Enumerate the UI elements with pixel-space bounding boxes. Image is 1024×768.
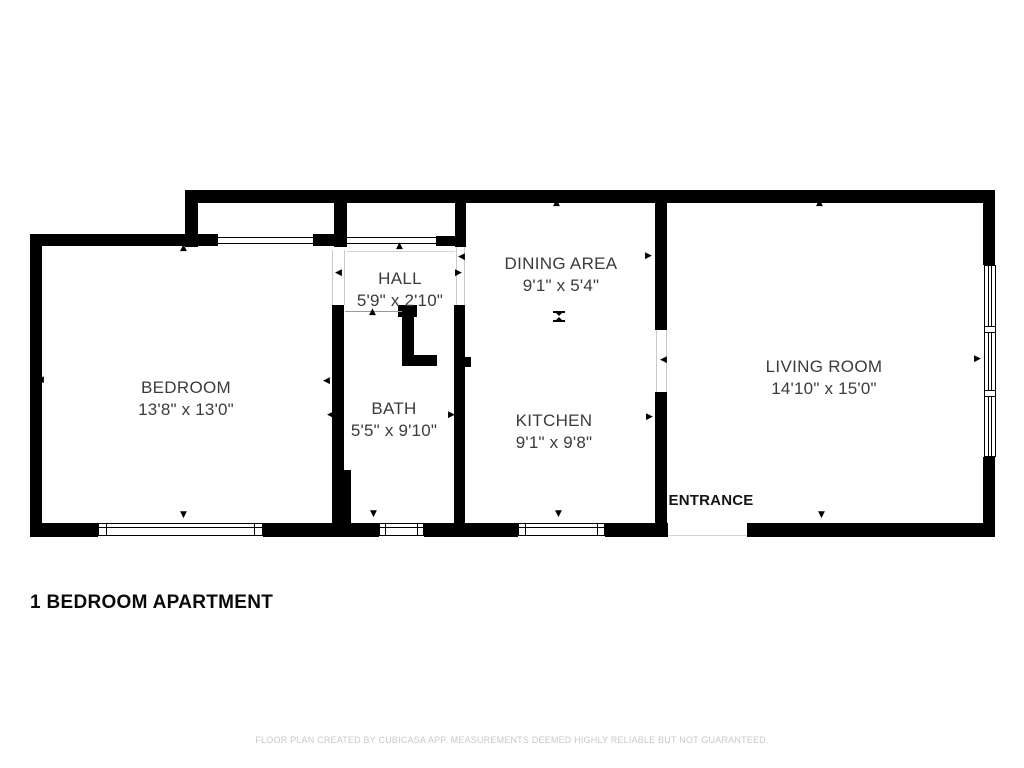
disclaimer-text: FLOOR PLAN CREATED BY CUBICASA APP. MEAS… bbox=[0, 735, 1024, 745]
window-kitchen bbox=[518, 523, 605, 536]
marker-arrow-left-icon: ◀ bbox=[327, 411, 334, 420]
plan-title: 1 BEDROOM APARTMENT bbox=[30, 592, 273, 614]
marker-arrow-right-icon: ▶ bbox=[645, 252, 652, 261]
window-sill-line bbox=[99, 527, 262, 528]
window-mullion bbox=[985, 390, 995, 397]
wall-bottom-3 bbox=[424, 523, 518, 537]
marker-arrow-right-icon: ▶ bbox=[455, 269, 462, 278]
window-bath bbox=[379, 523, 424, 536]
room-name: LIVING ROOM bbox=[714, 356, 934, 378]
wall-bottom-5 bbox=[747, 523, 995, 537]
wall-bedroom-bath-thick bbox=[332, 470, 351, 523]
wall-top bbox=[185, 190, 995, 203]
room-name: DINING AREA bbox=[451, 253, 671, 275]
marker-arrow-left-icon: ◀ bbox=[660, 356, 667, 365]
marker-arrow-up-icon: ▲ bbox=[369, 308, 376, 317]
window-cap-line bbox=[597, 524, 598, 535]
wall-bottom-4 bbox=[605, 523, 668, 537]
room-name: BEDROOM bbox=[76, 377, 296, 399]
window-bedroom bbox=[98, 523, 263, 536]
marker-arrow-right-icon: ▶ bbox=[448, 411, 455, 420]
floor-plan-page: BEDROOM 13'8" x 13'0" HALL 5'9" x 2'10" … bbox=[0, 0, 1024, 768]
marker-arrow-left-icon: ◀ bbox=[37, 376, 44, 385]
window-cap-line bbox=[525, 524, 526, 535]
opening-line-hall-top bbox=[347, 251, 455, 252]
wall-hall-dining-column bbox=[455, 203, 466, 247]
room-label-dining-area: DINING AREA 9'1" x 5'4" bbox=[451, 253, 671, 297]
wall-right-top bbox=[983, 203, 995, 265]
room-label-kitchen: KITCHEN 9'1" x 9'8" bbox=[444, 410, 664, 454]
room-dimensions: 13'8" x 13'0" bbox=[76, 399, 296, 421]
room-dimensions: 14'10" x 15'0" bbox=[714, 378, 934, 400]
wall-bedroom-top-left bbox=[30, 234, 218, 246]
marker-arrow-up-icon: ▲ bbox=[396, 242, 403, 251]
wall-bedroom-bath bbox=[332, 305, 344, 471]
wall-closet-stub bbox=[436, 236, 455, 246]
room-label-bedroom: BEDROOM 13'8" x 13'0" bbox=[76, 377, 296, 421]
wall-bedroom-top-stub bbox=[313, 234, 334, 246]
marker-arrow-right-icon: ▶ bbox=[974, 355, 981, 364]
entrance-label: ENTRANCE bbox=[631, 492, 791, 509]
marker-arrow-up-icon: ▲ bbox=[553, 199, 560, 208]
window-living-room bbox=[984, 265, 996, 457]
wall-left bbox=[30, 234, 42, 537]
closet-door-line bbox=[347, 237, 436, 238]
wall-bath-kitchen-bump bbox=[465, 357, 471, 367]
marker-arrow-right-icon: ▶ bbox=[646, 413, 653, 422]
window-cap-line bbox=[385, 524, 386, 535]
window-pane-line bbox=[988, 266, 989, 456]
marker-arrow-up-icon: ▲ bbox=[180, 244, 187, 253]
window-cap-line bbox=[254, 524, 255, 535]
marker-arrow-down-icon: ▼ bbox=[180, 511, 187, 520]
marker-arrow-left-icon: ◀ bbox=[323, 377, 330, 386]
room-label-living-room: LIVING ROOM 14'10" x 15'0" bbox=[714, 356, 934, 400]
marker-arrow-left-icon: ◀ bbox=[458, 253, 465, 262]
boundary-marker-icon bbox=[553, 311, 565, 322]
marker-arrow-left-icon: ◀ bbox=[457, 414, 464, 423]
closet-door-line bbox=[218, 243, 313, 244]
marker-arrow-down-icon: ▼ bbox=[818, 511, 825, 520]
entrance-threshold-line bbox=[668, 535, 747, 536]
marker-arrow-down-icon: ▼ bbox=[555, 510, 562, 519]
closet-door-line bbox=[218, 237, 313, 238]
closet-door-line bbox=[347, 243, 436, 244]
wall-bath-arm bbox=[402, 355, 437, 366]
window-sill-line bbox=[519, 527, 604, 528]
wall-bottom-1 bbox=[30, 523, 98, 537]
window-mullion bbox=[985, 326, 995, 333]
room-name: KITCHEN bbox=[444, 410, 664, 432]
room-dimensions: 9'1" x 9'8" bbox=[444, 432, 664, 454]
opening-line-kitchen-living bbox=[656, 330, 657, 392]
window-cap-line bbox=[106, 524, 107, 535]
wall-hall-left-column bbox=[334, 203, 347, 247]
window-pane-line bbox=[991, 266, 992, 456]
room-dimensions: 9'1" x 5'4" bbox=[451, 275, 671, 297]
wall-bottom-2 bbox=[263, 523, 379, 537]
window-cap-line bbox=[417, 524, 418, 535]
marker-arrow-down-icon: ▼ bbox=[370, 510, 377, 519]
marker-arrow-left-icon: ◀ bbox=[335, 269, 342, 278]
marker-arrow-up-icon: ▲ bbox=[816, 199, 823, 208]
